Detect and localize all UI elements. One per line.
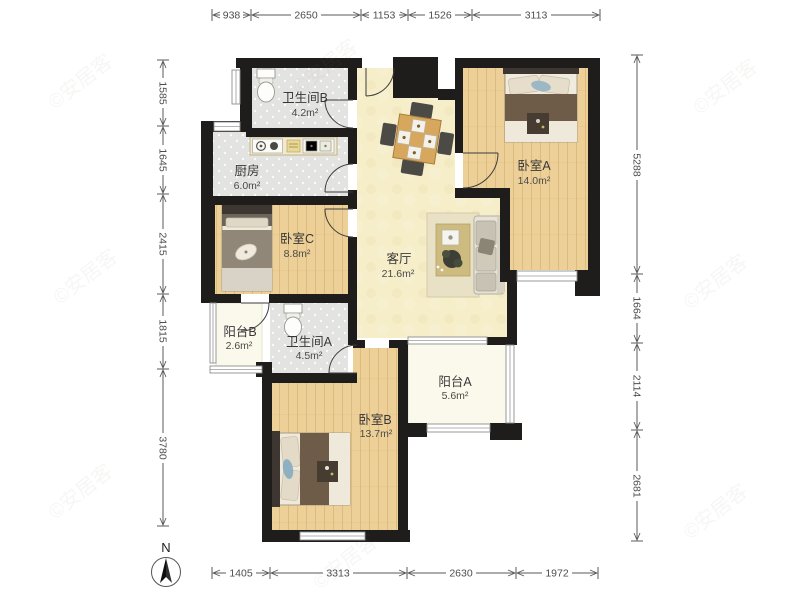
bed-cushion-dot — [245, 251, 248, 254]
dimension-bottom: 1405 3313 2630 1972 — [212, 567, 598, 580]
wall-segment — [455, 58, 600, 68]
room-area-bedroom-a: 14.0m² — [518, 175, 551, 187]
window — [300, 532, 365, 540]
room-area-kitchen: 6.0m² — [234, 180, 261, 192]
bed-throw — [527, 113, 549, 134]
wall-segment — [262, 373, 353, 383]
wall-segment — [201, 294, 241, 303]
sofa-cushion — [476, 273, 496, 291]
dim-value: 938 — [223, 10, 241, 22]
bed-throw-dot — [542, 126, 545, 129]
window — [517, 271, 577, 281]
room-area-balcony-a: 5.6m² — [442, 390, 469, 402]
window — [232, 70, 240, 104]
wall-segment — [393, 57, 438, 98]
room-name-balcony-b: 阳台B — [223, 324, 256, 339]
room-area-bedroom-b: 13.7m² — [360, 428, 393, 440]
bed-throw — [317, 461, 338, 482]
wall-segment — [500, 270, 517, 282]
room-area-bedroom-c: 8.8m² — [284, 248, 311, 260]
watermark-text: ©安居客 — [49, 245, 122, 309]
bed-throw-dot — [325, 466, 329, 470]
wall-segment — [490, 423, 522, 440]
wall-segment — [398, 340, 408, 542]
burner-icon — [270, 142, 278, 150]
wall-segment — [575, 270, 600, 296]
dim-value: 1815 — [157, 319, 169, 343]
bed-bedroom-c — [222, 205, 272, 291]
wall-segment — [348, 190, 357, 209]
dim-value: 2650 — [294, 10, 318, 22]
dim-value: 1526 — [428, 10, 452, 22]
sofa-pillow — [477, 238, 495, 256]
compass-n-label: N — [161, 540, 170, 555]
dim-value: 3113 — [525, 10, 548, 22]
room-name-balcony-a: 阳台A — [438, 374, 472, 389]
toilet-bowl — [285, 317, 302, 337]
bed-bedroom-b — [270, 431, 350, 507]
wall-segment — [262, 372, 272, 542]
wall-segment — [500, 198, 510, 282]
bed-sheet — [222, 268, 272, 291]
wall-segment — [455, 58, 463, 153]
dim-value: 1153 — [373, 10, 396, 22]
watermark-text: ©安居客 — [679, 480, 752, 544]
window — [210, 303, 216, 363]
dim-value: 1405 — [229, 568, 253, 580]
wall-segment — [201, 205, 215, 300]
toilet-bowl — [258, 82, 275, 102]
plant-icon — [454, 259, 463, 268]
bed-bedroom-a — [503, 64, 579, 142]
dim-value: 2415 — [157, 232, 169, 256]
bed-headboard — [222, 205, 272, 214]
wall-segment — [201, 196, 357, 205]
sofa-set — [427, 213, 504, 297]
wall-segment — [269, 294, 357, 303]
burner-icon — [260, 145, 263, 148]
wall-segment — [588, 58, 600, 282]
rug-dot — [441, 269, 444, 272]
room-area-bathroom-b: 4.2m² — [292, 107, 319, 119]
dim-value: 2681 — [631, 474, 643, 498]
counter-box — [287, 140, 300, 152]
dimension-top: 938 2650 1153 1526 3113 — [212, 9, 600, 22]
room-name-bedroom-b: 卧室B — [358, 412, 391, 427]
dim-value: 2630 — [449, 568, 473, 580]
room-area-bathroom-a: 4.5m² — [296, 350, 323, 362]
dim-value: 1645 — [157, 148, 169, 172]
sink-dot — [324, 145, 326, 147]
room-name-living: 客厅 — [386, 251, 411, 266]
dim-value: 2114 — [631, 375, 643, 398]
sink-dot — [310, 145, 312, 147]
watermark-text: ©安居客 — [689, 55, 762, 119]
window — [408, 337, 487, 344]
window — [427, 424, 490, 432]
room-name-bedroom-c: 卧室C — [280, 231, 314, 246]
toilet-tank — [257, 69, 275, 78]
dimension-left: 1585 1645 2415 1815 3780 — [157, 60, 170, 526]
wall-segment — [240, 58, 252, 124]
window — [506, 345, 514, 423]
watermark-text: ©安居客 — [679, 250, 752, 314]
watermark-text: ©安居客 — [44, 460, 117, 524]
watermark-text: ©安居客 — [44, 50, 117, 114]
wall-segment — [201, 121, 213, 201]
north-compass: N — [152, 540, 181, 587]
dim-value: 1664 — [631, 296, 643, 320]
wall-segment — [408, 423, 427, 437]
toilet-tank — [284, 304, 302, 313]
pillow — [226, 218, 268, 227]
wall-segment — [348, 237, 357, 345]
dim-value: 3780 — [157, 436, 169, 460]
wall-segment — [246, 128, 357, 137]
toilet-bathroom-a — [284, 304, 302, 337]
wall-segment — [455, 188, 510, 198]
wall-segment — [348, 58, 357, 100]
room-area-balcony-b: 2.6m² — [226, 340, 253, 352]
floorplan-drawing: 卫生间B 4.2m² 厨房 6.0m² 卧室A 14.0m² 卧室C 8.8m²… — [0, 0, 800, 600]
room-name-bathroom-a: 卫生间A — [286, 335, 333, 349]
dim-value: 1972 — [545, 568, 569, 580]
dim-value: 5288 — [631, 153, 643, 177]
plant-icon — [442, 250, 450, 258]
kitchen-counter — [250, 137, 337, 155]
bed-throw-dot — [536, 119, 540, 123]
room-name-bedroom-a: 卧室A — [517, 158, 551, 173]
rug-dot — [437, 266, 440, 269]
dimension-right: 5288 1664 2114 2681 — [631, 55, 644, 541]
window — [210, 366, 262, 373]
room-area-living: 21.6m² — [382, 268, 415, 280]
toilet-bathroom-b — [257, 69, 275, 102]
floorplan-page: 卫生间B 4.2m² 厨房 6.0m² 卧室A 14.0m² 卧室C 8.8m²… — [0, 0, 800, 600]
dim-value: 1585 — [157, 81, 169, 105]
wall-segment — [348, 373, 357, 383]
bed-throw-dot — [331, 473, 334, 476]
room-name-kitchen: 厨房 — [234, 163, 259, 178]
wall-segment — [389, 340, 408, 348]
wall-segment — [487, 337, 517, 345]
tray-dot — [448, 235, 452, 239]
window — [214, 122, 240, 131]
wall-segment — [507, 282, 517, 343]
